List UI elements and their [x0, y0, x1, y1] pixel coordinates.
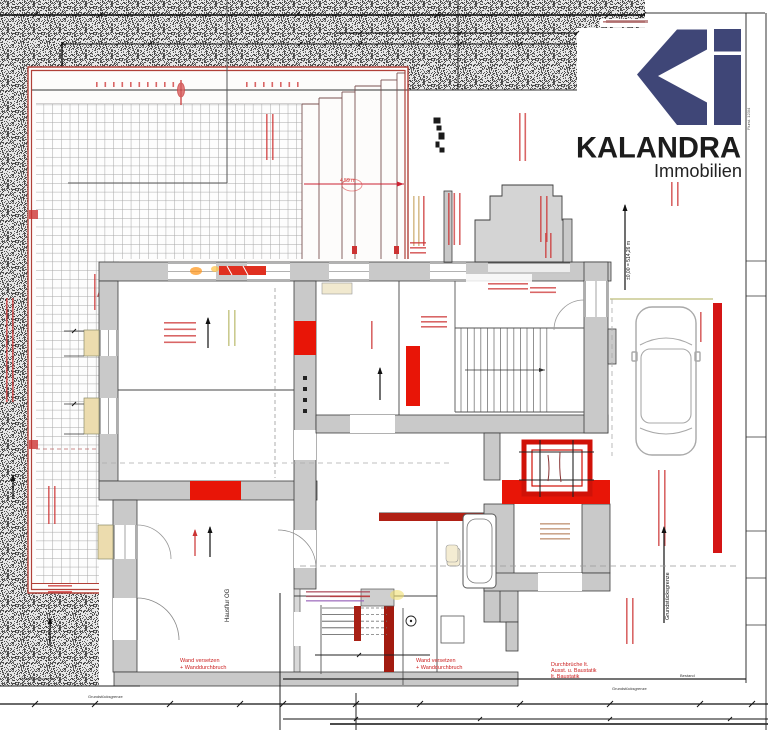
svg-text:Wand versetzen: Wand versetzen [416, 658, 456, 664]
svg-text:Wand versetzen: Wand versetzen [180, 658, 220, 664]
svg-text:Grundstücksgrenze: Grundstücksgrenze [20, 676, 55, 681]
svg-text:+ Wanddurchbruch: + Wanddurchbruch [180, 665, 226, 671]
svg-text:Grundstücksgrenze: Grundstücksgrenze [665, 572, 671, 620]
svg-text:+ Wanddurchbruch: + Wanddurchbruch [416, 665, 462, 671]
svg-text:4,59 m: 4,59 m [340, 178, 355, 184]
svg-text:Grundstücksgrenze: Grundstücksgrenze [612, 686, 647, 691]
svg-text:Flurst. 123/4: Flurst. 123/4 [746, 107, 751, 130]
svg-text:Bestand: Bestand [680, 673, 695, 678]
svg-text:Grundstücksgrenze: Grundstücksgrenze [88, 694, 123, 699]
svg-text:Immobilien: Immobilien [654, 160, 742, 181]
svg-text:±0,00 = 514,26 m: ±0,00 = 514,26 m [626, 241, 632, 280]
svg-text:Hausflur OG: Hausflur OG [225, 588, 231, 622]
